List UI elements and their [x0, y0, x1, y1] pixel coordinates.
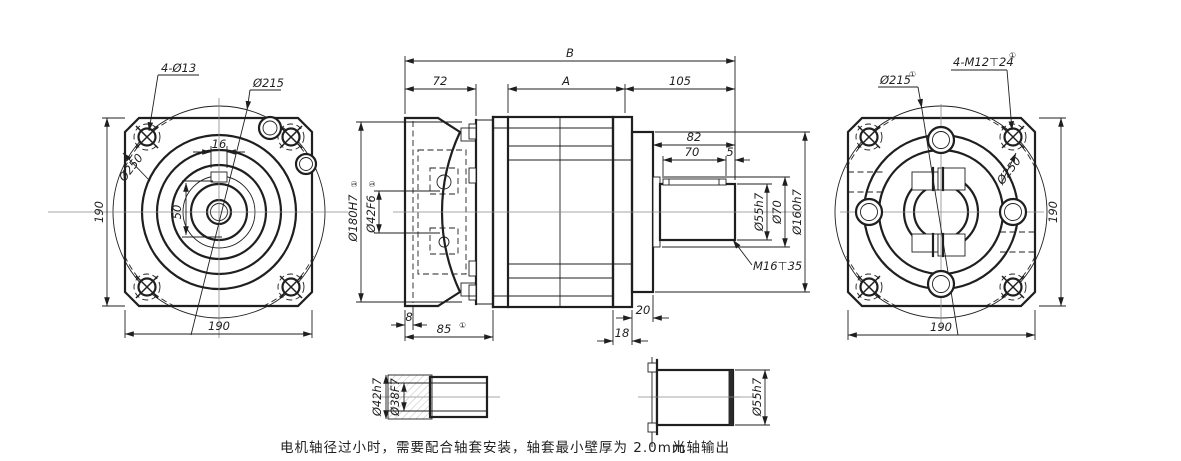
- dim-motor-pilot-dia: Ø180H7: [346, 194, 360, 243]
- corner-hole: [278, 274, 304, 300]
- dim-motor-pilot-note: ①: [350, 180, 359, 187]
- dim-output-length: 105: [669, 74, 691, 88]
- label-tapped-holes-note: ①: [1009, 51, 1016, 60]
- clamp-screw-hole: [259, 117, 281, 139]
- dim-keyway-width: 16: [212, 137, 227, 151]
- tapped-corner-hole: [856, 274, 882, 300]
- tapped-corner-hole: [1000, 274, 1026, 300]
- clamp-screw-hole: [296, 154, 316, 174]
- input-flange-view: 16 50 190 190 4-Ø13 Ø215 Ø250: [48, 61, 348, 338]
- flange-hole: [928, 127, 954, 153]
- flange-hole: [856, 199, 882, 225]
- dim-key-end-gap: 5: [726, 145, 733, 159]
- label-end-tap: M16⊤35: [753, 259, 802, 273]
- dim-output-pilot-len: 20: [636, 303, 651, 317]
- dim-flange-plate: 18: [615, 326, 630, 340]
- dim-body-length: A: [561, 74, 570, 88]
- tapped-corner-hole: [1000, 124, 1026, 150]
- dim-flange-height: 190: [92, 201, 106, 223]
- dim-pilot-dia: Ø160h7: [790, 189, 804, 236]
- dim-keyway-to-center: 50: [170, 205, 184, 220]
- label-housing-dia-note: ①: [909, 70, 916, 79]
- corner-hole: [134, 124, 160, 150]
- label-tapped-holes: 4-M12⊤24: [953, 55, 1014, 69]
- dim-bushing-outer-dia: Ø42h7: [370, 377, 384, 417]
- bushing-detail: Ø42h7 Ø38F7 电机轴径过小时，需要配合轴套安装，轴套最小壁厚为 2.0…: [280, 375, 686, 456]
- side-view: B 72 A 105 82 70 5 Ø55h7 Ø70 Ø160h7: [346, 46, 810, 345]
- dim-bushing-bore-dia: Ø38F7: [388, 378, 402, 417]
- label-corner-holes: 4-Ø13: [161, 61, 196, 75]
- corner-hole: [134, 274, 160, 300]
- plain-shaft-body: [657, 370, 733, 425]
- dim-flange-height: 190: [1046, 201, 1060, 223]
- dim-motor-shaft-bore-note: ①: [368, 180, 377, 187]
- dim-flange-width: 190: [208, 319, 230, 333]
- shaft-key: [663, 179, 726, 185]
- label-housing-dia: Ø215: [252, 76, 284, 90]
- drawing-svg: 16 50 190 190 4-Ø13 Ø215 Ø250: [0, 0, 1181, 461]
- tapped-corner-hole: [856, 124, 882, 150]
- dim-adapter-depth-note: ①: [459, 321, 466, 330]
- dim-overall-length: B: [566, 46, 574, 60]
- dim-shaft-dia: Ø55h7: [752, 192, 766, 232]
- dim-plain-shaft-dia: Ø55h7: [750, 377, 764, 417]
- flange-hole: [928, 271, 954, 297]
- output-flange-view: Ø215 ① 4-M12⊤24 ① Ø250 190 190: [835, 51, 1066, 340]
- dim-plate-thickness: 8: [405, 310, 412, 324]
- bushing-note: 电机轴径过小时，需要配合轴套安装，轴套最小壁厚为 2.0mm: [280, 440, 686, 456]
- dim-flange-width: 190: [930, 320, 952, 334]
- label-housing-dia: Ø215: [879, 73, 911, 87]
- plain-shaft-caption: 光轴输出: [672, 440, 730, 456]
- label-bolt-circle: Ø250: [115, 151, 146, 185]
- gearbox-technical-drawing: 16 50 190 190 4-Ø13 Ø215 Ø250: [0, 0, 1181, 461]
- dim-key-length: 70: [685, 145, 700, 159]
- dim-adapter-depth: 85: [437, 322, 452, 336]
- flange-hole: [1000, 199, 1026, 225]
- dim-motor-shaft-bore: Ø42F6: [364, 195, 378, 234]
- dim-adapter-length: 72: [433, 74, 448, 88]
- dim-shoulder-dia: Ø70: [770, 200, 784, 225]
